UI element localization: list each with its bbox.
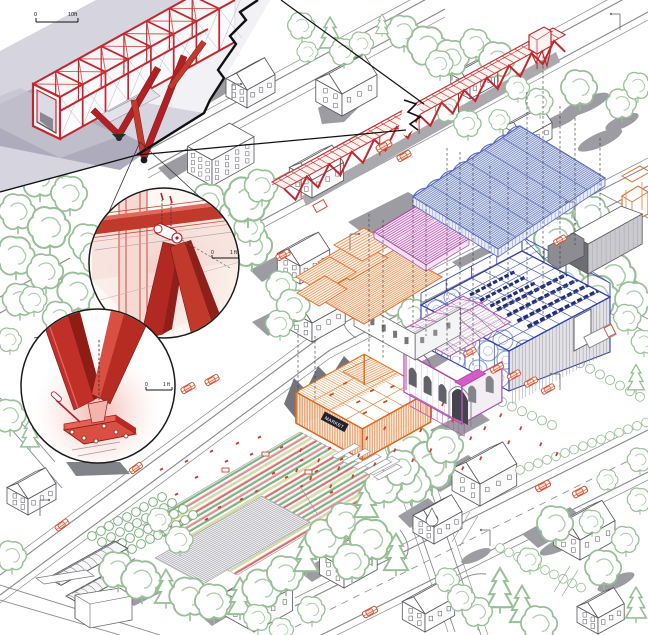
- svg-text:1 ft: 1 ft: [163, 382, 171, 388]
- svg-text:0: 0: [34, 12, 37, 18]
- svg-text:1 ft: 1 ft: [230, 250, 238, 256]
- svg-text:0: 0: [145, 382, 148, 388]
- svg-text:0: 0: [211, 250, 214, 256]
- svg-text:10ft: 10ft: [68, 12, 78, 18]
